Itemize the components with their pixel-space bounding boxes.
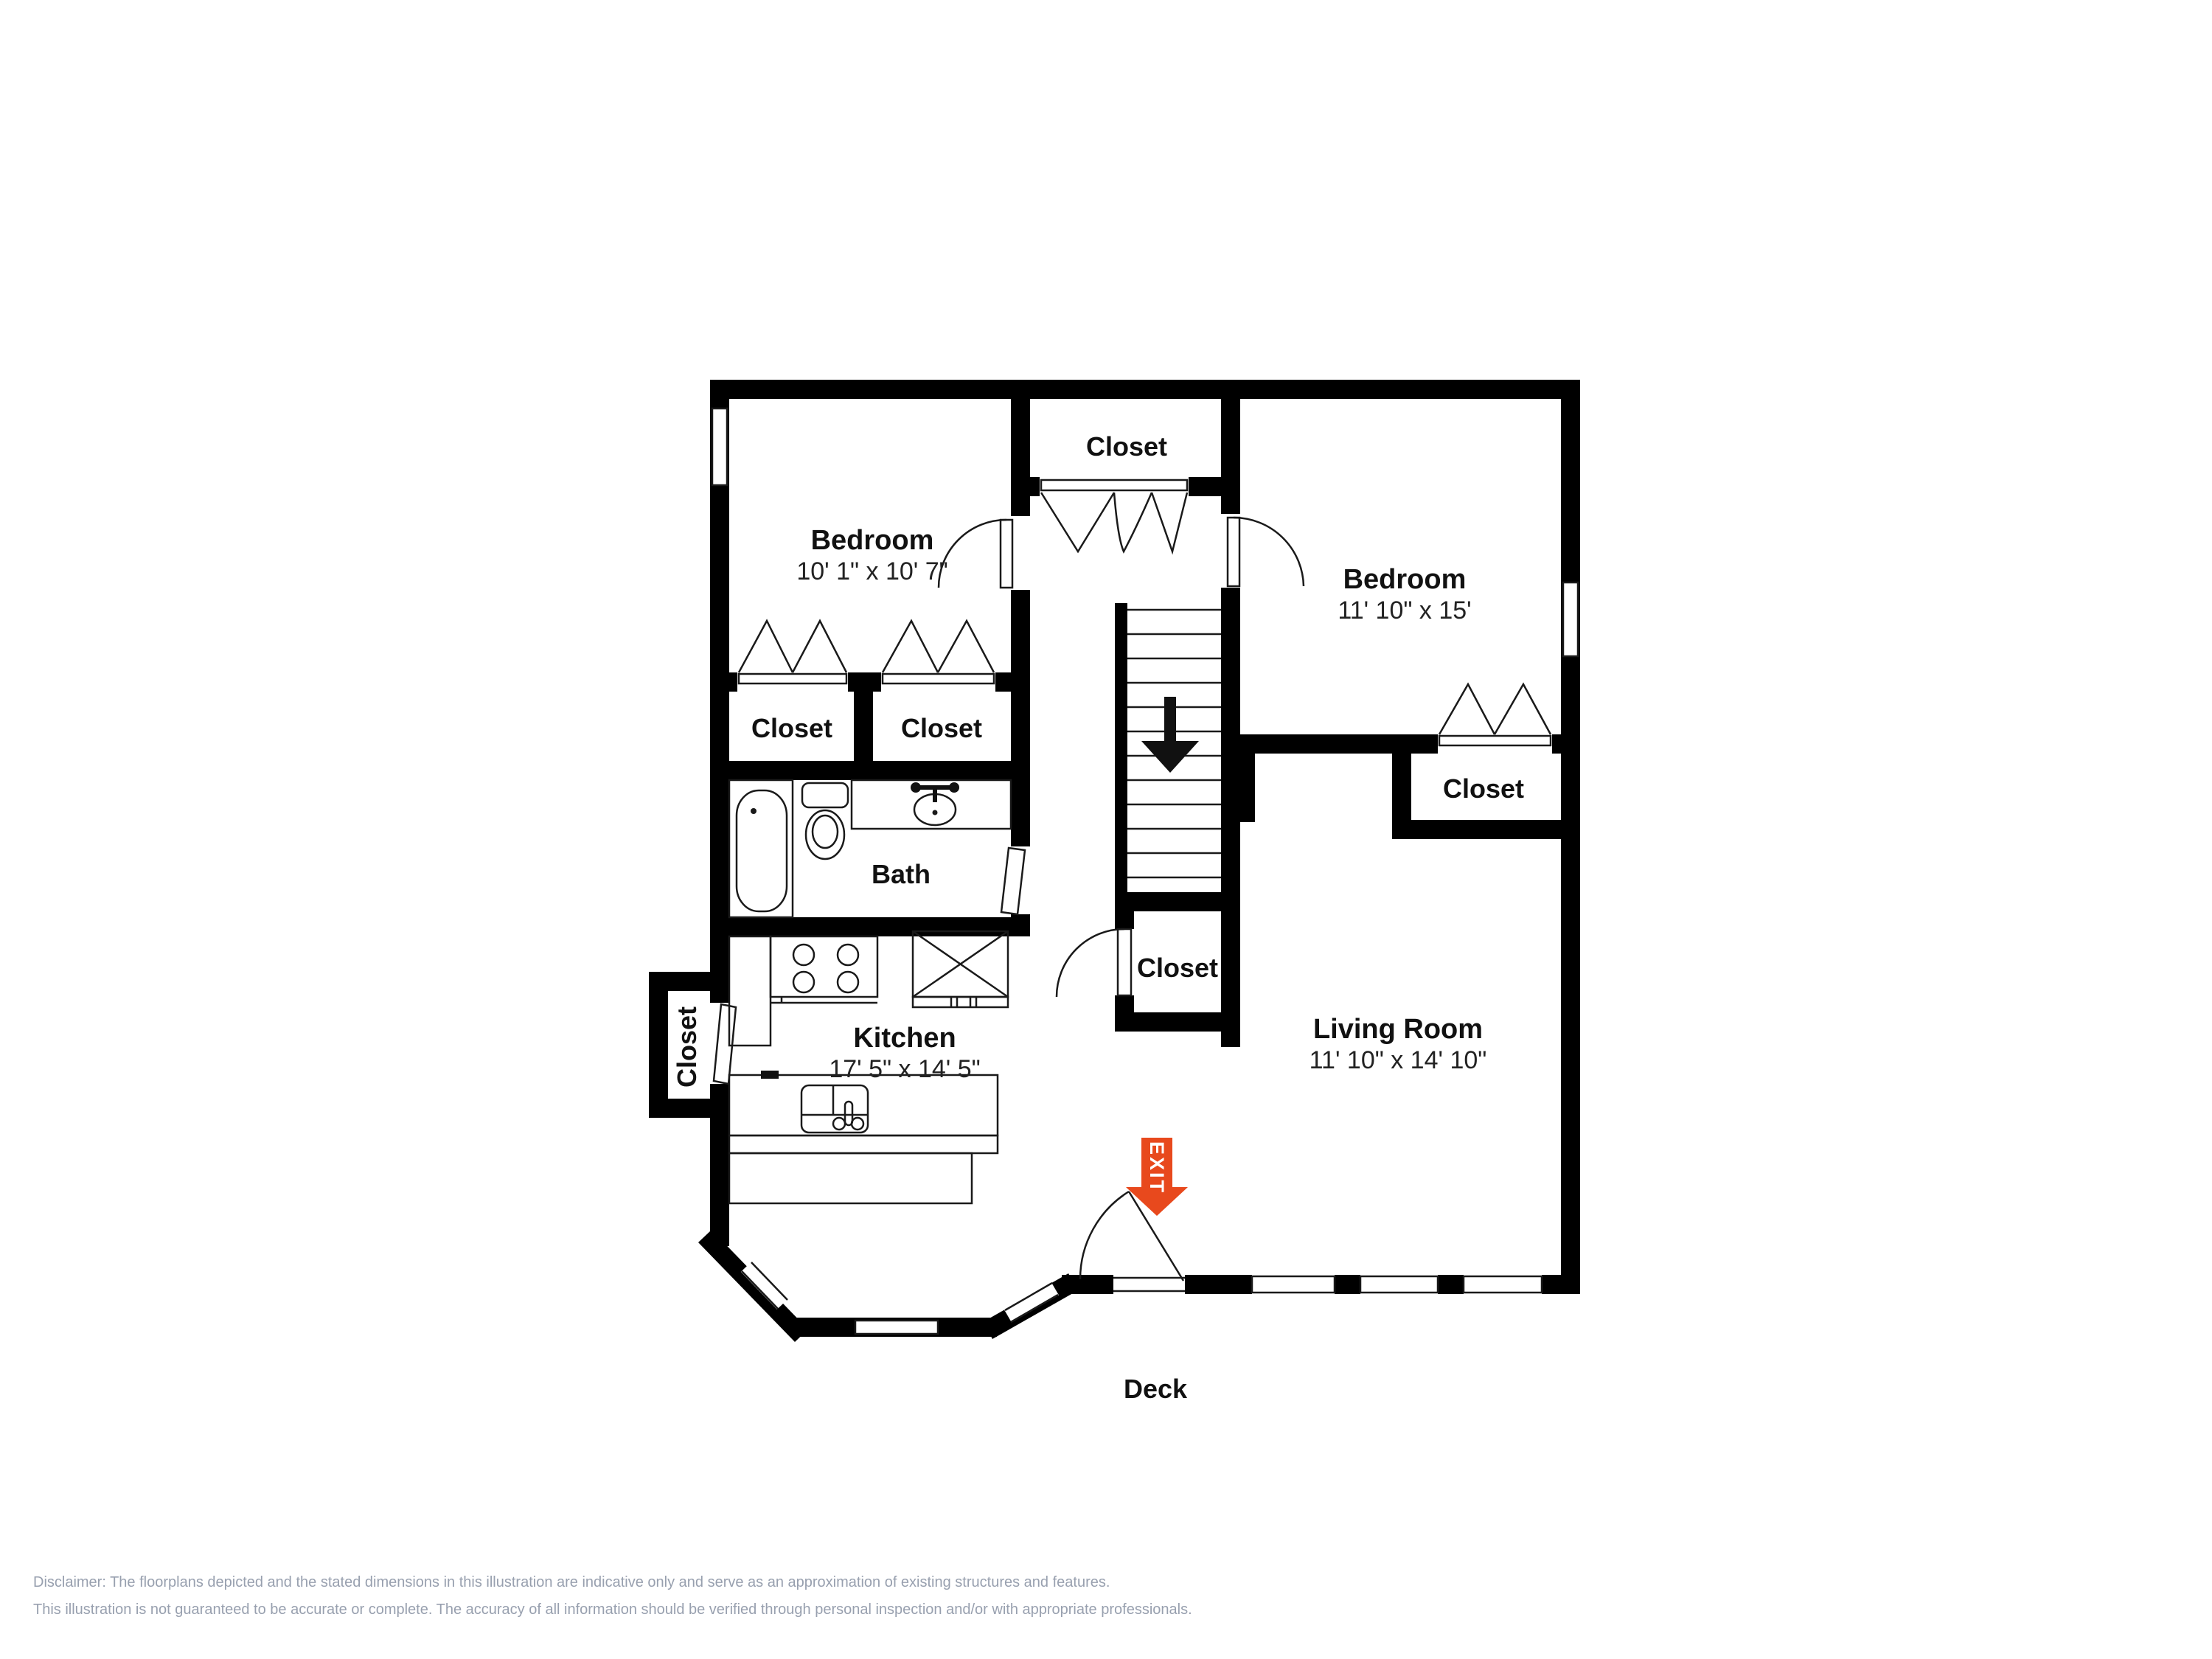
wall-bedroom-right-bottom-right	[1552, 734, 1580, 754]
dims-living-room: 11' 10" x 14' 10"	[1310, 1046, 1487, 1074]
wall-bump-bottom	[649, 1099, 729, 1118]
wall-bump-left	[649, 972, 668, 1118]
label-deck: Deck	[1124, 1374, 1188, 1404]
wall-top	[710, 380, 1580, 399]
window-living-3	[1464, 1276, 1542, 1293]
door-leaf-bedroom-left	[1001, 520, 1012, 588]
door-leaf-bedroom-right	[1228, 518, 1239, 586]
floorplan-canvas: EXIT Closet Bedroom 10' 1" x 10' 7" Bedr…	[0, 0, 2212, 1659]
page-background	[0, 0, 2212, 1659]
window-bedroom-right	[1563, 582, 1578, 656]
wall-bath-bottom	[710, 917, 1030, 936]
wall-ustairs-closet-bottom	[1115, 1012, 1240, 1032]
window-living-2	[1360, 1276, 1438, 1293]
label-living-room: Living Room	[1313, 1014, 1483, 1045]
wall-bottom-seg4	[1438, 1275, 1464, 1294]
wall-bottom-seg2	[1185, 1275, 1252, 1294]
wall-stair-left	[1115, 603, 1127, 911]
wall-bottom-seg1	[1062, 1275, 1113, 1294]
label-closet-top: Closet	[1086, 431, 1167, 462]
dims-bedroom-left: 10' 1" x 10' 7"	[796, 557, 947, 585]
window-bay-bottom	[855, 1321, 938, 1334]
label-bath: Bath	[872, 859, 931, 889]
island-mark	[761, 1071, 779, 1079]
label-closet-kitchen: Closet	[672, 1006, 702, 1088]
wall-bottom-corner	[1542, 1275, 1580, 1294]
disclaimer-line-2: This illustration is not guaranteed to b…	[33, 1601, 1192, 1618]
wall-right	[1561, 399, 1580, 1294]
disclaimer-line-1: Disclaimer: The floorplans depicted and …	[33, 1574, 1110, 1590]
exit-label: EXIT	[1146, 1141, 1168, 1194]
floorplan-page: { "plan": { "rooms": { "bedroom_left": {…	[0, 0, 2212, 1659]
wall-bedroom-right-bottom-left	[1240, 734, 1438, 754]
label-closet-under-stairs: Closet	[1137, 953, 1218, 983]
label-closet-left-1: Closet	[751, 713, 832, 743]
wall-stair-bottom	[1115, 892, 1240, 911]
bifold-slab-closet-left-1	[739, 674, 846, 684]
dims-bedroom-right: 11' 10" x 15'	[1338, 597, 1471, 625]
wall-closet-row-bottom	[710, 761, 1030, 780]
label-closet-right: Closet	[1443, 773, 1524, 804]
bifold-slab-closet-left-2	[883, 674, 994, 684]
wall-left	[710, 399, 729, 1246]
dims-kitchen: 17' 5" x 14' 5"	[829, 1055, 980, 1083]
label-kitchen: Kitchen	[853, 1023, 956, 1054]
label-bedroom-right: Bedroom	[1343, 564, 1467, 595]
label-closet-left-2: Closet	[901, 713, 982, 743]
wall-bottom-seg3	[1335, 1275, 1360, 1294]
bifold-slab-top-closet	[1041, 480, 1187, 490]
wall-closet-right-bottom	[1392, 820, 1580, 839]
window-bedroom-left	[712, 408, 727, 485]
door-leaf-ustairs-closet	[1118, 929, 1131, 995]
tub-drain	[751, 808, 757, 814]
window-living-1	[1252, 1276, 1335, 1293]
label-bedroom-left: Bedroom	[811, 525, 934, 556]
bifold-slab-closet-right	[1439, 736, 1551, 745]
wall-b-hall-living	[1221, 399, 1240, 1047]
doorway-bedroom-left	[1011, 516, 1030, 590]
